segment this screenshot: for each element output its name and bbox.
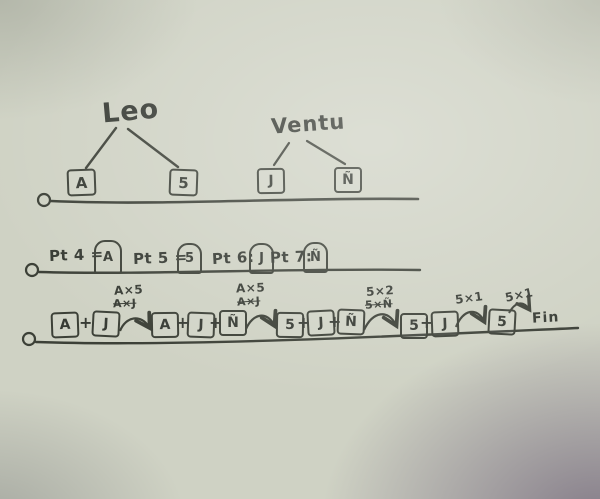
seq-box: Ñ (219, 310, 247, 336)
seq-box: A (51, 312, 80, 339)
pt5-value-box: 5 (177, 243, 202, 274)
seq-box: Ñ (337, 309, 366, 336)
transition-label: A×5 (236, 280, 266, 295)
plus-sign: + (79, 313, 92, 332)
leo-left-branch (86, 128, 116, 168)
transition-label: A×5 (114, 282, 144, 298)
pt7-value-box: Ñ (303, 242, 328, 273)
seq-box: 5 (487, 308, 516, 335)
transition-crossed-label: A×J (237, 294, 261, 308)
paper-photo: Leo A 5 Ventu J Ñ Pt 4 = A Pt 5 = 5 Pt 6… (0, 0, 600, 499)
transition-crossed-label: A×J (113, 297, 137, 311)
fin-label: Fin (532, 309, 560, 326)
timeline2-start-circle (26, 264, 38, 276)
timeline3-start-circle (23, 333, 35, 345)
seq-box: J (431, 311, 460, 338)
ventu-left-branch (274, 143, 289, 165)
transition-crossed-label: 5×Ñ (365, 297, 393, 311)
timeline1-start-circle (38, 194, 50, 206)
seq-box: J (91, 310, 120, 337)
tree-node-n: Ñ (334, 167, 362, 193)
transition-arrow-1 (120, 318, 149, 331)
tree-node-a: A (67, 169, 97, 197)
pt4-value-box: A (94, 240, 122, 274)
ventu-right-branch (307, 141, 345, 164)
seq-box: A (151, 312, 179, 338)
timeline1-line (51, 199, 418, 203)
tree-node-j: J (257, 168, 285, 194)
tree-label-leo: Leo (101, 94, 161, 130)
transition-arrow-4 (456, 312, 484, 327)
transition-arrow-2 (246, 316, 274, 329)
leo-right-branch (128, 129, 178, 167)
transition-arrow-3 (364, 314, 396, 330)
tree-node-5: 5 (169, 169, 199, 197)
